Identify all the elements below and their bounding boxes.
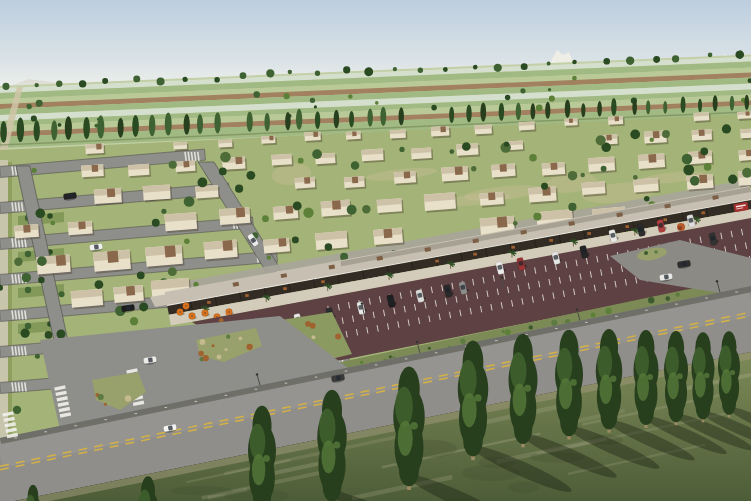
poplar-tree: [367, 108, 372, 126]
house: [737, 111, 751, 121]
shrub: [212, 344, 215, 347]
aerial-render-viewport: Aerial rendering of a residential commun…: [0, 0, 751, 501]
shop-light: [701, 211, 705, 214]
house: [390, 129, 408, 140]
poplar-tree: [581, 103, 585, 117]
poplar-tree: [285, 112, 290, 130]
yard-tree: [728, 174, 737, 183]
yard-tree: [533, 213, 541, 221]
yard-tree: [704, 163, 712, 171]
yard-tree: [246, 171, 255, 180]
yard-tree: [293, 201, 302, 210]
yard-tree: [644, 196, 650, 202]
yard-tree: [184, 196, 195, 207]
poplar-tree: [499, 103, 504, 121]
yard-tree: [220, 152, 231, 163]
yard-tree: [347, 205, 357, 215]
shrub: [529, 325, 533, 329]
house: [582, 181, 608, 197]
street-tree: [45, 331, 53, 339]
shrub: [505, 329, 511, 335]
yard-tree: [219, 168, 227, 176]
house: [304, 132, 322, 143]
poplar-tree: [165, 112, 172, 135]
shrub: [502, 330, 505, 333]
poplar-tree: [545, 102, 550, 119]
yard-tree: [700, 148, 708, 156]
house: [71, 289, 105, 310]
house: [271, 154, 293, 168]
house: [218, 139, 234, 149]
house: [638, 153, 667, 171]
yard-tree: [662, 130, 670, 138]
yard-tree: [152, 219, 160, 227]
shrub: [246, 344, 252, 350]
yard-tree: [580, 173, 585, 178]
poplar-tree: [132, 115, 139, 137]
poplar-tree: [663, 101, 667, 114]
poplar-tree: [632, 99, 637, 115]
poplar-tree: [65, 116, 72, 140]
house: [519, 121, 537, 132]
shrub: [591, 313, 596, 318]
house: [441, 166, 470, 184]
yard-tree: [169, 161, 177, 169]
street-tree: [47, 213, 53, 219]
shrub: [676, 292, 680, 296]
shop-light: [663, 218, 667, 221]
house: [694, 112, 711, 123]
house: [261, 136, 277, 146]
yard-tree: [682, 154, 693, 165]
house: [424, 192, 458, 213]
poplar-tree: [315, 111, 320, 129]
house: [431, 126, 451, 139]
shop-light: [549, 239, 553, 242]
shrub: [551, 320, 557, 326]
poplar-tree: [349, 111, 354, 128]
shrub: [239, 337, 243, 341]
shrub: [648, 297, 654, 303]
yard-tree: [31, 168, 36, 173]
street-tree: [25, 287, 31, 293]
shrub: [104, 403, 107, 406]
yard-tree: [35, 208, 45, 218]
house: [633, 178, 660, 195]
poplar-tree: [51, 120, 57, 140]
poplar-tree: [264, 113, 270, 131]
poplar-tree: [399, 107, 404, 125]
street-tree: [58, 291, 64, 297]
street-tree: [161, 209, 166, 214]
house: [491, 163, 517, 179]
house: [361, 148, 385, 163]
street-tree: [137, 271, 145, 279]
poplar-tree: [516, 103, 521, 121]
house: [739, 149, 751, 163]
poplar-tree: [730, 96, 734, 111]
yard-tree: [568, 203, 576, 211]
shrub: [98, 394, 104, 400]
yard-tree: [262, 215, 269, 222]
yard-tree: [14, 258, 22, 266]
house: [113, 285, 145, 305]
shrub: [203, 355, 209, 361]
shop-light: [587, 232, 591, 235]
poplar-tree: [214, 112, 220, 133]
yard-tree: [650, 138, 654, 142]
yard-tree: [541, 183, 548, 190]
house: [93, 249, 133, 273]
poplar-tree: [149, 115, 155, 137]
shrub: [198, 351, 204, 357]
yard-tree: [292, 236, 299, 243]
house: [692, 129, 714, 143]
house: [219, 207, 252, 227]
house: [173, 142, 188, 152]
house: [68, 221, 95, 238]
yard-tree: [633, 175, 638, 180]
poplar-tree: [83, 117, 90, 139]
street-tree: [56, 330, 65, 339]
yard-tree: [601, 166, 607, 172]
shop-light: [511, 246, 515, 249]
yard-tree: [596, 135, 606, 145]
poplar-tree: [296, 109, 302, 130]
shrub: [644, 251, 648, 255]
poplar-tree: [197, 114, 203, 134]
poplar-tree: [698, 99, 702, 112]
house: [175, 160, 197, 174]
yard-tree: [139, 302, 148, 311]
shrub: [360, 361, 364, 365]
yard-tree: [471, 166, 476, 171]
yard-tree: [399, 147, 404, 152]
house: [480, 192, 506, 208]
shrub: [654, 250, 658, 254]
poplar-tree: [744, 95, 749, 110]
yard-tree: [568, 171, 578, 181]
yard-tree: [462, 142, 471, 151]
yard-tree: [50, 221, 55, 226]
shrub: [125, 395, 131, 401]
yard-tree: [22, 273, 31, 282]
house: [542, 162, 567, 178]
yard-tree: [362, 205, 370, 213]
house: [377, 198, 404, 215]
poplar-tree: [334, 110, 340, 128]
yard-tree: [690, 176, 700, 186]
poplar-tree: [34, 120, 40, 141]
yard-tree: [35, 354, 40, 359]
poplar-tree: [449, 107, 454, 123]
house: [373, 227, 404, 247]
shop-light: [245, 294, 249, 297]
house: [85, 143, 105, 156]
shrub: [217, 355, 222, 360]
poplar-tree: [597, 101, 602, 116]
shop-light: [283, 287, 287, 290]
yard-tree: [235, 185, 243, 193]
shrub: [389, 355, 392, 358]
house: [411, 147, 433, 161]
house: [195, 185, 220, 200]
yard-tree: [325, 243, 333, 251]
house: [204, 239, 240, 261]
street-tree: [20, 329, 29, 338]
house: [14, 224, 41, 240]
shop-light: [207, 301, 211, 304]
yard-tree: [168, 267, 177, 276]
street-tree: [25, 323, 31, 329]
poplar-tree: [530, 103, 535, 119]
street-tree: [95, 280, 104, 289]
house: [608, 116, 625, 127]
poplar-tree: [713, 95, 718, 111]
house: [394, 171, 418, 186]
yard-tree: [529, 154, 537, 162]
yard-tree: [312, 149, 322, 159]
street-tree: [38, 277, 45, 284]
yard-tree: [37, 256, 47, 266]
aerial-community-rendering: Aerial rendering of a residential commun…: [0, 0, 751, 501]
shop-light: [473, 253, 477, 256]
yard-tree: [13, 406, 21, 414]
poplar-tree: [565, 99, 571, 118]
shrub: [665, 296, 670, 301]
house: [315, 231, 349, 252]
yard-tree: [130, 317, 138, 325]
yard-tree: [722, 124, 731, 133]
shrub: [428, 347, 431, 350]
house: [346, 131, 363, 142]
poplar-tree: [118, 118, 124, 138]
poplar-tree: [247, 111, 253, 132]
shrub: [224, 348, 227, 351]
yard-tree: [630, 130, 640, 140]
house: [295, 177, 317, 191]
house: [164, 212, 198, 233]
poplar-tree: [17, 117, 24, 142]
poplar-tree: [184, 114, 190, 135]
house: [143, 184, 173, 202]
yard-tree: [449, 149, 454, 154]
shrub: [605, 308, 611, 314]
poplar-tree: [466, 104, 471, 122]
shrub: [226, 334, 230, 338]
yard-tree: [267, 255, 272, 260]
house: [263, 238, 292, 256]
poplar-tree: [611, 98, 616, 116]
street-tree: [25, 251, 31, 257]
yard-tree: [351, 161, 360, 170]
shop-light: [321, 280, 325, 283]
yard-tree: [513, 221, 518, 226]
house: [564, 118, 579, 128]
shrub: [312, 335, 316, 339]
poplar-tree: [646, 100, 650, 114]
yard-tree: [184, 239, 190, 245]
house: [94, 188, 124, 206]
poplar-tree: [380, 107, 386, 126]
house: [145, 245, 184, 269]
yard-tree: [303, 208, 313, 218]
yard-tree: [298, 158, 304, 164]
shrub: [305, 321, 311, 327]
yard-tree: [683, 164, 694, 175]
house: [475, 124, 494, 136]
poplar-tree: [0, 121, 7, 143]
yard-tree: [197, 178, 207, 188]
shop-light: [435, 260, 439, 263]
shrub: [460, 339, 465, 344]
shop-light: [625, 225, 629, 228]
shrub: [335, 334, 341, 340]
poplar-tree: [480, 102, 486, 121]
shrub: [199, 339, 205, 345]
poplar-tree: [97, 115, 104, 138]
house: [81, 164, 105, 179]
poplar-tree: [681, 96, 686, 112]
yard-tree: [504, 142, 509, 147]
house: [344, 176, 367, 190]
house: [128, 164, 151, 178]
